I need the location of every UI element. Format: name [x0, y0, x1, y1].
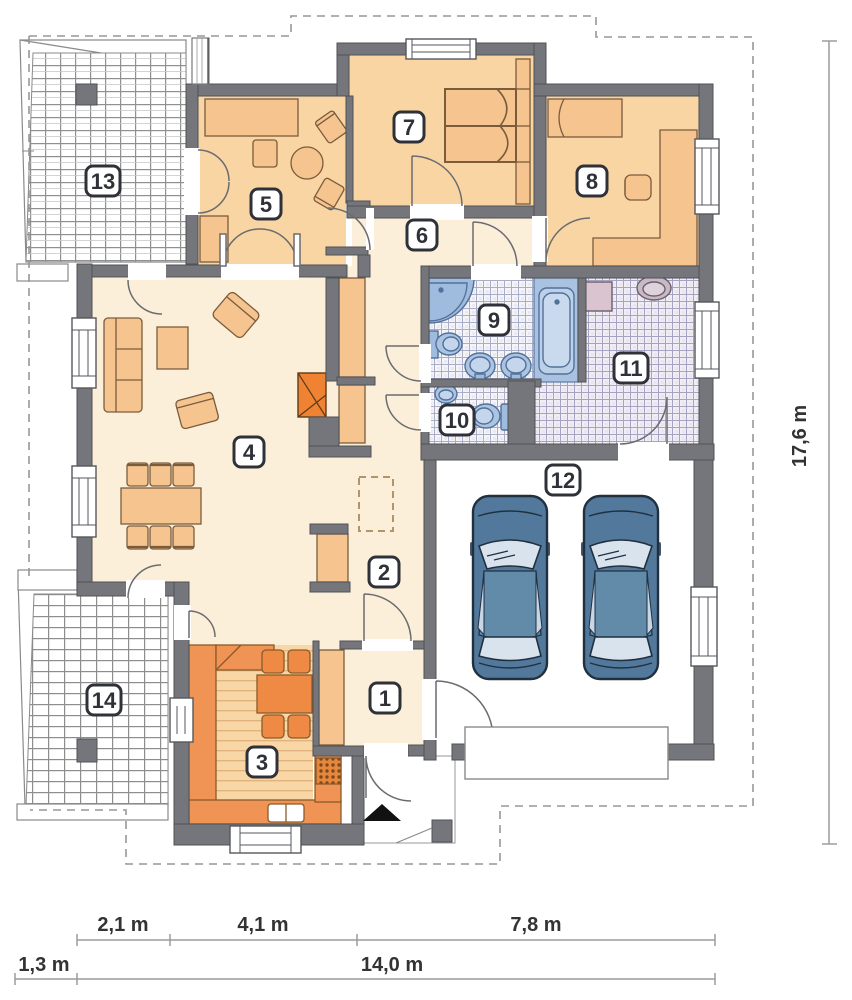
svg-text:7: 7 [403, 115, 415, 140]
svg-text:2: 2 [378, 560, 390, 585]
svg-text:2,1 m: 2,1 m [97, 914, 148, 936]
svg-text:13: 13 [91, 169, 115, 194]
svg-text:14,0 m: 14,0 m [361, 954, 423, 976]
svg-text:12: 12 [551, 468, 575, 493]
svg-text:17,6 m: 17,6 m [789, 405, 811, 467]
svg-text:5: 5 [260, 192, 272, 217]
svg-text:8: 8 [586, 169, 598, 194]
svg-text:11: 11 [619, 356, 642, 381]
svg-text:1: 1 [379, 686, 391, 711]
svg-text:14: 14 [92, 688, 117, 713]
svg-text:4: 4 [243, 440, 256, 465]
svg-text:1,3 m: 1,3 m [18, 954, 69, 976]
svg-text:3: 3 [256, 750, 268, 775]
svg-text:10: 10 [445, 408, 469, 433]
svg-text:7,8 m: 7,8 m [510, 914, 561, 936]
svg-text:9: 9 [488, 308, 500, 333]
svg-text:6: 6 [416, 223, 428, 248]
svg-text:4,1 m: 4,1 m [237, 914, 288, 936]
